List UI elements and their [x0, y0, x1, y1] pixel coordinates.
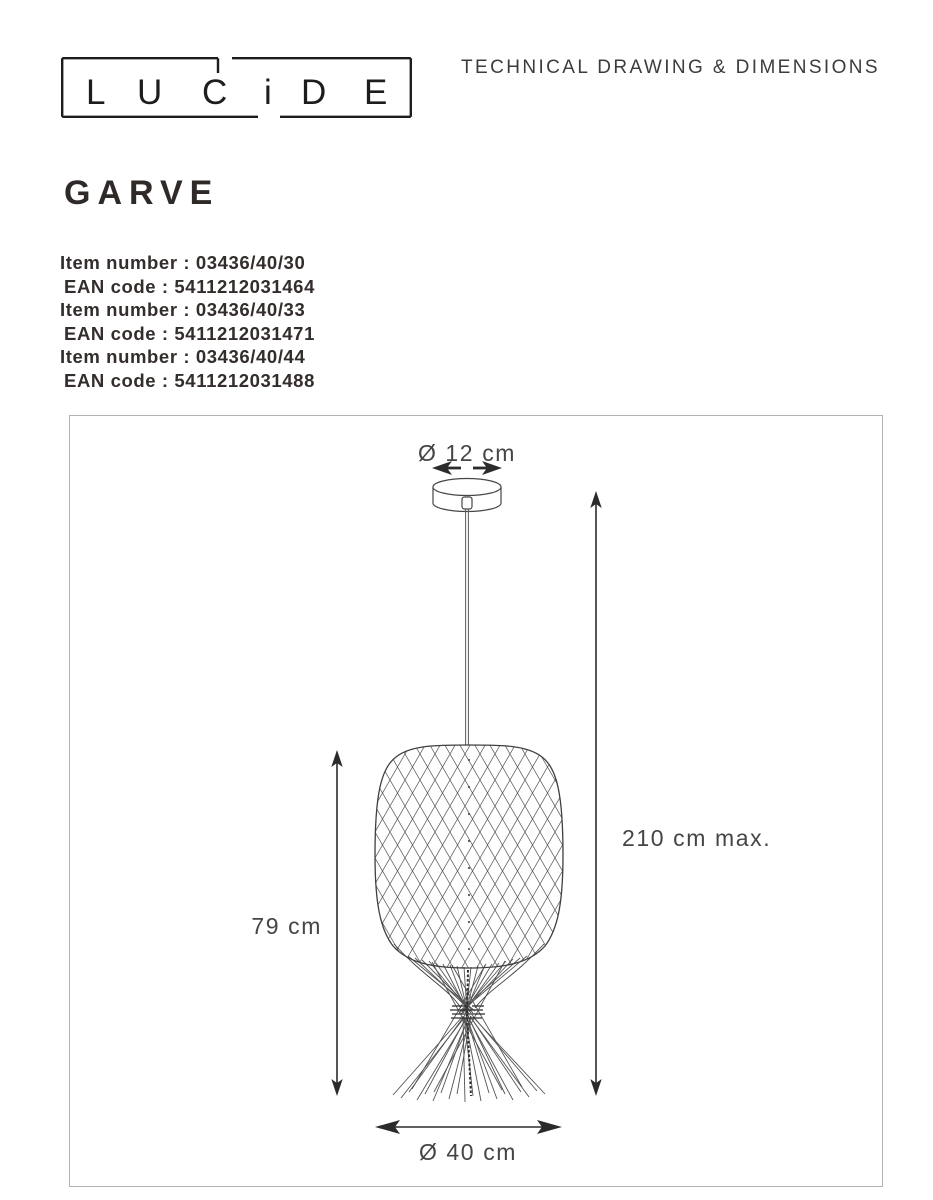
item-number-line: Item number : 03436/40/44 [60, 345, 315, 369]
shade-height-label: 79 cm [251, 913, 322, 939]
max-height-label: 210 cm max. [622, 825, 771, 851]
ean-code-line: EAN code : 5411212031488 [60, 369, 315, 393]
logo-letter: U [137, 73, 162, 112]
product-name: GARVE [64, 174, 219, 213]
document-title: TECHNICAL DRAWING & DIMENSIONS [461, 57, 880, 79]
logo-letter: C [202, 73, 227, 112]
item-number-line: Item number : 03436/40/30 [60, 251, 315, 275]
logo-letter: D [301, 73, 326, 112]
logo-box [62, 58, 411, 117]
ean-code-line: EAN code : 5411212031471 [60, 322, 315, 346]
wire-bundle [393, 956, 545, 1102]
drawing-frame: Ø 12 cm [69, 415, 883, 1187]
shade-height-arrow [331, 750, 342, 1096]
item-number-line: Item number : 03436/40/33 [60, 298, 315, 322]
page: { "brand": { "name": "LUCIDE", "letters"… [0, 0, 933, 1200]
suspension-wire [466, 509, 469, 746]
ean-code-line: EAN code : 5411212031464 [60, 275, 315, 299]
lamp-shade [375, 745, 563, 968]
logo-letter: L [86, 73, 105, 112]
logo-letter: E [364, 73, 387, 112]
max-height-arrow [590, 491, 601, 1096]
bottom-diameter-arrow [375, 1120, 562, 1134]
ceiling-canopy [433, 479, 501, 512]
technical-drawing: Ø 12 cm [70, 416, 881, 1185]
brand-logo: L U C i D E [61, 57, 412, 119]
bottom-diameter-label: Ø 40 cm [419, 1139, 517, 1165]
product-codes: Item number : 03436/40/30 EAN code : 541… [60, 251, 315, 393]
canopy-diameter-label: Ø 12 cm [418, 440, 516, 466]
logo-letter: i [264, 73, 272, 112]
